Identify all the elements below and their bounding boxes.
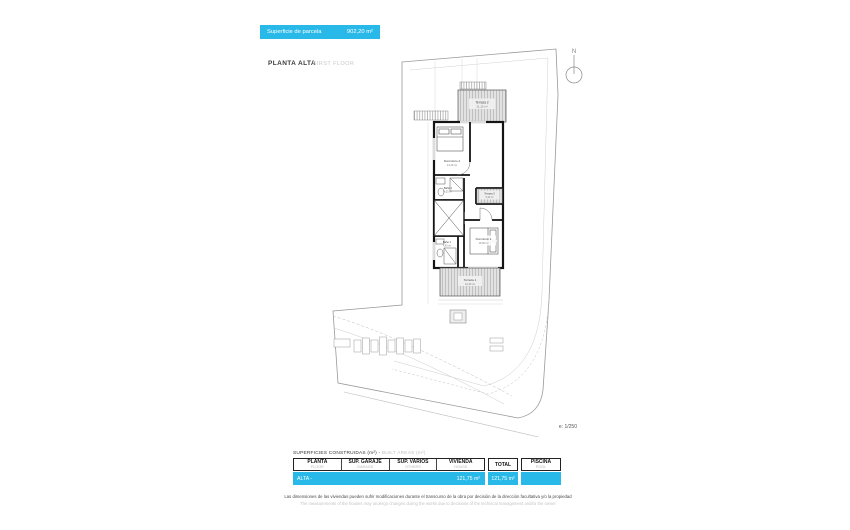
header-piscina: PISCINA POOL [521,458,561,471]
header-garaje: SUP. GARAJE GARAGE [342,459,390,470]
room-label-bano-1: Baño 1 [443,240,452,244]
room-label-bano-2: Baño 2 [444,186,453,190]
table-total-group: TOTAL 121,75 m² [488,458,518,485]
areas-table: SUPERFICIES CONSTRUIDAS (m²) - BUILT ARE… [293,451,561,485]
planter-detail [490,346,503,351]
table-caption-es: SUPERFICIES CONSTRUIDAS (m²) - [293,451,382,456]
parcel-surface-banner: Superficie de parcela 902,20 m² [260,25,380,39]
road-contour-dashed [333,316,512,396]
table-caption-en: BUILT AREAS (m²) [382,451,426,456]
header-total-cell: TOTAL [489,459,517,470]
scale-label: e: 1/250 [535,424,577,430]
table-row: ALTA - 121,75 m² [293,472,485,485]
header-total: TOTAL [488,458,518,471]
fence-comb-symbol [460,82,486,89]
table-piscina-group: PISCINA POOL [521,458,561,485]
planter-detail [490,338,503,343]
skylight-inner [454,313,462,320]
header-piscina-subtitle: POOL [536,465,547,470]
disclaimer-spanish: Las dimensiones de las viviendas pueden … [278,494,578,500]
floor-plan-drawing: Terraza 2 21,15 m² Dormitorio 2 14,10 m²… [330,42,570,437]
row-vivienda: 121,75 m² [439,476,485,482]
header-piscina-cell: PISCINA POOL [522,459,560,470]
room-area-dormitorio-1: 16,35 m² [479,242,489,245]
header-varios: SUP. VARIOS OTHERS [390,459,438,470]
room-label-dormitorio-2: Dormitorio 2 [444,159,461,163]
table-main-group: PLANTA FLOOR SUP. GARAJE GARAGE SUP. VAR… [293,458,485,485]
row-planta: ALTA - [293,476,343,482]
room-area-terraza-3: 5,10 m² [486,196,494,199]
header-total-title: TOTAL [495,462,511,468]
header-garaje-subtitle: GARAGE [357,465,373,470]
header-planta-subtitle: FLOOR [311,465,324,470]
table-caption: SUPERFICIES CONSTRUIDAS (m²) - BUILT ARE… [293,451,561,456]
bed-dormitorio-2 [437,127,463,151]
header-planta: PLANTA FLOOR [294,459,342,470]
room-label-terraza-3: Terraza 3 [484,193,495,196]
room-label-terraza-1: Terraza 1 [464,278,477,282]
row-piscina [521,472,561,485]
header-varios-subtitle: OTHERS [405,465,421,470]
room-label-dormitorio-1: Dormitorio 1 [476,237,492,241]
header-vivienda-subtitle: HOUSE [454,465,468,470]
table-header: PLANTA FLOOR SUP. GARAJE GARAGE SUP. VAR… [293,458,485,471]
room-area-bano-1: 4,60 m² [443,245,451,248]
north-label: N [572,49,576,55]
row-total: 121,75 m² [488,472,518,485]
parcel-surface-value: 902,20 m² [347,25,373,39]
room-area-terraza-1: 12,40 m² [465,282,475,286]
room-area-dormitorio-2: 14,10 m² [447,163,457,167]
plan-sheet: Superficie de parcela 902,20 m² PLANTA A… [0,0,850,530]
exterior-stairs [334,337,421,355]
fence-comb-symbol [414,111,448,120]
header-vivienda: VIVIENDA HOUSE [437,459,484,470]
stairwell [434,200,464,236]
room-area-bano-2: 4,25 m² [444,191,452,194]
disclaimer-english: The measurements of the houses may under… [278,501,578,507]
floor-title: PLANTA ALTA [268,60,316,67]
disclaimer: Las dimensiones de las viviendas pueden … [278,494,578,506]
parcel-surface-label: Superficie de parcela [267,25,321,39]
room-area-terraza-2: 21,15 m² [476,105,487,109]
